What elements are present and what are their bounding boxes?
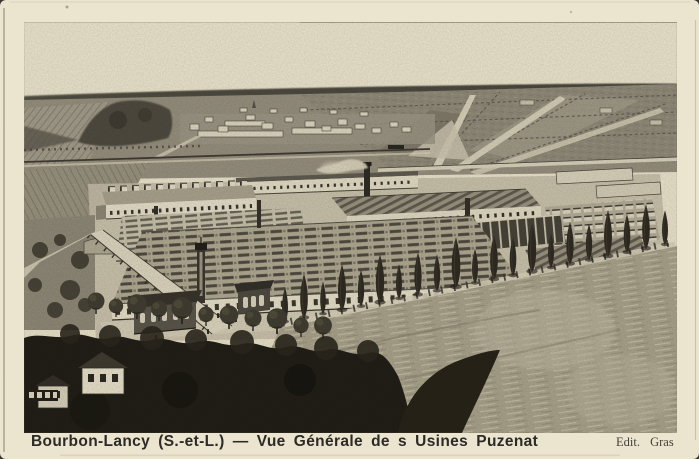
publisher-credit: Edit. Gras xyxy=(616,435,674,450)
caption-bar: Bourbon-Lancy (S.-et-L.) — Vue Générale … xyxy=(0,430,699,459)
postcard: Bourbon-Lancy (S.-et-L.) — Vue Générale … xyxy=(0,0,699,459)
caption-title: Bourbon-Lancy (S.-et-L.) — Vue Générale … xyxy=(31,433,538,451)
postcard-illustration xyxy=(0,0,699,459)
